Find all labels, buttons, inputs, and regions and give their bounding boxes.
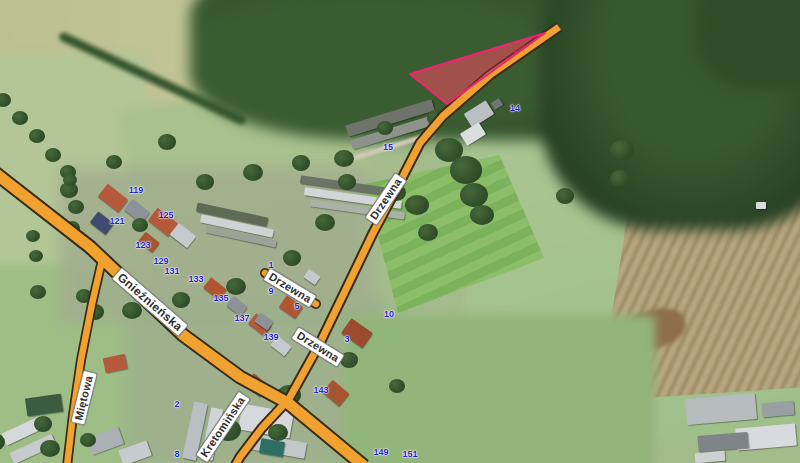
house-number-label: 2 <box>174 400 179 409</box>
house-number-label: 129 <box>153 257 168 266</box>
house-number-label: 139 <box>263 333 278 342</box>
house-number-label: 149 <box>373 448 388 457</box>
house-number-label: 133 <box>188 275 203 284</box>
road-label-mitowa: Miętowa <box>70 370 97 426</box>
road-label-drzewna: Drzewna <box>291 326 346 368</box>
house-number-label: 10 <box>384 310 394 319</box>
house-number-label: 123 <box>135 241 150 250</box>
road-label-drzewna: Drzewna <box>364 172 407 226</box>
house-number-label: 131 <box>164 267 179 276</box>
road-label-gnienieska: Gnieźnieńska <box>111 267 189 337</box>
house-number-label: 5 <box>294 302 299 311</box>
house-number-label: 3 <box>344 335 349 344</box>
house-number-label: 119 <box>129 186 144 195</box>
house-number-label: 151 <box>402 450 417 459</box>
house-number-label: 15 <box>383 143 393 152</box>
house-number-label: 135 <box>213 294 228 303</box>
house-number-label: 121 <box>109 217 124 226</box>
house-number-label: 137 <box>234 314 249 323</box>
map-viewport[interactable]: 40/4 DrzewnaDrzewnaDrzewnaGnieźnieńskaMi… <box>0 0 800 463</box>
house-number-label: 143 <box>313 386 328 395</box>
parcel-number-label: 40/4 <box>511 42 526 55</box>
house-number-label: 125 <box>158 211 173 220</box>
house-number-label: 9 <box>268 287 273 296</box>
house-number-label: 1 <box>268 261 273 270</box>
house-number-label: 14 <box>510 104 520 113</box>
road-label-kretomiska: Kretomińska <box>195 390 251 463</box>
house-number-label: 8 <box>174 450 179 459</box>
map-label-layer: 40/4 DrzewnaDrzewnaDrzewnaGnieźnieńskaMi… <box>0 0 800 463</box>
